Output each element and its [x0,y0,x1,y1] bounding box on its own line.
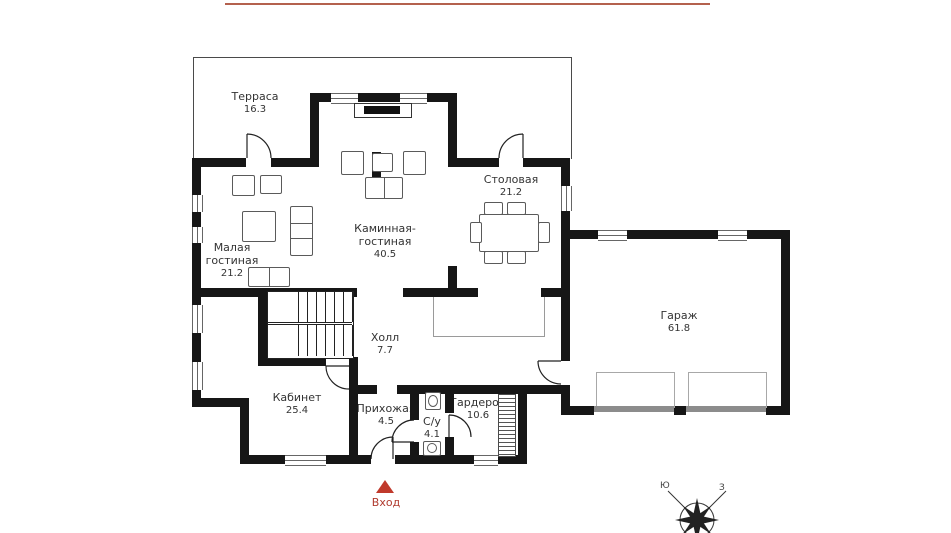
room-label-fireplace-living: Каминная- гостиная 40.5 [325,223,445,261]
wall-segment [448,93,457,167]
chair [538,222,550,243]
wall-segment [561,158,570,186]
parking-space [688,372,767,408]
wall-segment [410,385,419,420]
wall-segment [326,455,371,464]
stair-treads-lower [290,325,353,356]
window [598,230,627,241]
sink-bowl [428,395,438,407]
garage-door [686,406,766,412]
cabinet [290,206,313,256]
wall-segment [781,230,790,415]
armchair [341,151,364,175]
wall-segment [445,385,454,413]
wall-segment [358,93,400,102]
window [718,230,747,241]
kitchen-counter [433,297,545,337]
wall-segment [271,158,310,167]
sofa [248,267,290,287]
armchair [372,153,393,172]
armchair [403,151,426,175]
wall-segment [310,93,319,167]
compass-rose-icon [647,470,757,533]
wall-segment [561,211,570,361]
wall-segment [310,93,331,102]
entrance-marker-icon [376,480,394,493]
wall-segment [627,230,718,239]
chair [507,251,526,264]
wall-segment [349,385,377,394]
wall-segment [192,212,201,227]
wall-segment [192,333,201,362]
stair-treads-upper [290,292,353,322]
floor-plan: Терраса 16.3 Малая гостиная 21.2 Каминна… [0,0,951,533]
dining-table [479,214,539,252]
entrance-label: Вход [346,496,426,509]
door-terrace-dining [499,134,523,158]
chair [470,222,482,243]
window [474,455,498,466]
wall-segment [570,406,594,415]
stair-landing-line [268,322,352,323]
chair [484,202,503,215]
wall-segment [192,158,201,195]
window [192,362,203,390]
wall-segment [518,385,527,464]
chair [507,202,526,215]
armchair [260,175,282,194]
door-hall-office [326,366,349,389]
coffee-table [242,211,276,242]
room-label-dining: Столовая 21.2 [451,174,571,199]
wall-segment [403,288,478,297]
wall-segment [349,357,358,464]
window [192,227,203,243]
chair [484,251,503,264]
wall-segment [240,455,285,464]
room-label-garage: Гараж 61.8 [619,310,739,335]
window [192,195,203,212]
washer-drum [427,443,437,453]
door-garage [538,361,561,384]
compass-west-label: З [719,483,725,493]
wall-segment [448,266,457,297]
parking-space [596,372,675,408]
fireplace-firebox [364,106,400,114]
wall-segment [766,406,790,415]
wall-segment [674,406,686,415]
compass-south-label: Ю [660,481,670,491]
doors-and-stairs-overlay [0,0,951,533]
door-terrace-smallliving [247,134,271,158]
window [285,455,326,466]
wardrobe-shelving [498,394,516,457]
room-label-terrace: Терраса 16.3 [195,91,315,116]
armchair [232,175,255,196]
window [192,305,203,333]
wall-segment [395,455,474,464]
window [561,186,572,211]
wall-segment [570,230,598,239]
garage-door [594,406,674,412]
wall-segment [258,288,267,366]
wall-segment [457,158,499,167]
sofa [365,177,403,199]
wall-segment [397,385,570,394]
stair-landing-line [268,324,352,325]
